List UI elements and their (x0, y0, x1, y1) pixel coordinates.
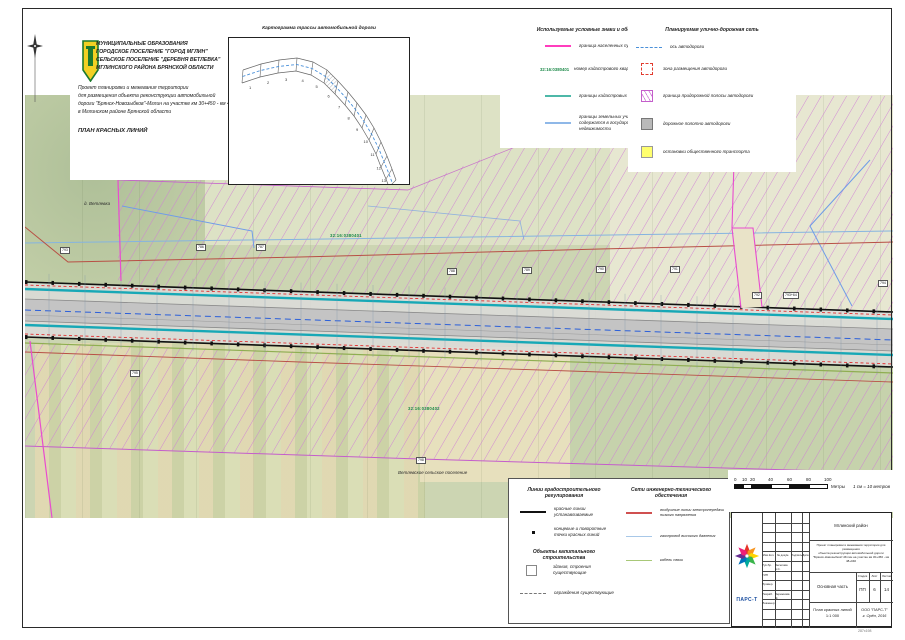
legend-reg-title: Линии градостроительного регулирования (514, 487, 614, 499)
sig-header: Изм.Кол. (762, 553, 775, 557)
sig-role: Провер. (762, 582, 775, 586)
svg-text:10: 10 (364, 139, 369, 144)
svg-text:3: 3 (285, 77, 288, 82)
building-swatch (526, 565, 537, 576)
legend-item: красные линии устанавливаемые (520, 506, 616, 518)
project-desc: Проект планировки и межевания территории… (811, 544, 891, 563)
svg-text:13: 13 (382, 178, 387, 183)
stage-label: Стадия (856, 574, 869, 578)
legend-item: газопровод высокого давления (626, 534, 726, 539)
sig-header: № докум. (775, 553, 791, 557)
legend-item: дорожное полотно автодороги (641, 118, 787, 130)
scalebar-note: 1 см = 10 метров (853, 484, 890, 489)
legend-item: концевые и поворотные точки красных лини… (520, 526, 616, 538)
pars-t-logo-text: ПАРС-Т (732, 597, 762, 603)
power-line-swatch (626, 512, 652, 514)
svg-text:7: 7 (338, 105, 341, 110)
pars-t-logo-icon (734, 539, 760, 573)
sig-role: Разраб. (762, 592, 775, 596)
doc-title: План красных линий 1:1 000 (809, 607, 856, 619)
compass-north-icon (26, 34, 44, 106)
turn-point-swatch (532, 531, 535, 534)
cadastral-number-swatch: 32:16:0380401 (540, 67, 572, 72)
legend-item: остановки общественного транспорта (641, 146, 787, 158)
svg-text:9: 9 (356, 127, 359, 132)
sig-role: Инженер (762, 601, 775, 605)
municipal-title: МУНИЦИПАЛЬНЫЕ ОБРАЗОВАНИЯ ГОРОДСКОЕ ПОСЕ… (96, 40, 246, 72)
project-title: Проект планировки и межевания территории… (78, 84, 244, 116)
title-block: ПАРС-Т Изм.Кол. № докум. Подпись Дата Ру… (731, 512, 892, 627)
svg-text:1: 1 (249, 85, 252, 90)
inset-route-diagram: 1234567891011121314 (229, 38, 409, 184)
scalebar-bar: Метры1 см = 10 метров (734, 484, 892, 489)
legend-item: здания, строения существующие (520, 564, 616, 576)
company-cell: ООО "ПАРС-Т" г. Орёл, 2016 (856, 608, 893, 619)
sig-name: Вережнова М. (775, 592, 791, 600)
sheet-label: Лист (869, 574, 880, 578)
svg-text:8: 8 (348, 116, 351, 121)
sig-role: Рук.бр. (762, 563, 775, 567)
sig-name: Веселова Е.С. (775, 563, 791, 571)
road-surface-swatch (641, 118, 653, 130)
plan-title: ПЛАН КРАСНЫХ ЛИНИЙ (78, 128, 147, 134)
svg-text:5: 5 (316, 84, 319, 89)
part-cell: Основная часть (809, 584, 856, 589)
district-cell: Мглинский район (809, 523, 893, 528)
legend-eng-title: Сети инженерно-технического обеспечения (616, 487, 726, 499)
sheets-label: Листов (880, 574, 893, 578)
legend-item: воздушные линии электропередачи низкого … (626, 508, 726, 518)
magenta-line-swatch (545, 45, 571, 48)
axis-dashed-swatch (636, 47, 662, 48)
inset-title: Картограмма трассы автомобильной дороги (228, 26, 410, 31)
svg-text:11: 11 (371, 152, 376, 157)
sheet: д. Ветлевка Ветлевское сельское поселени… (0, 0, 905, 640)
sheet-value: 6 (869, 587, 880, 592)
svg-text:6: 6 (328, 94, 331, 99)
legend-item: ограждения существующие (520, 590, 616, 596)
teal-line-swatch (545, 95, 571, 98)
red-zone-swatch (641, 63, 653, 75)
legend-item: граница придорожной полосы автодороги (641, 90, 787, 102)
legend-capital-title: Объекты капитального строительства (514, 549, 614, 561)
inset-cartogram: 1234567891011121314 (228, 37, 410, 185)
gas-line-swatch (626, 536, 652, 538)
cable-line-swatch (626, 560, 652, 562)
sheets-value: 14 (880, 587, 893, 592)
sig-header: Дата (802, 553, 809, 557)
bus-stop-swatch (641, 146, 653, 158)
fence-dashed-swatch (520, 593, 546, 594)
svg-text:4: 4 (302, 78, 305, 83)
red-line-swatch (520, 511, 546, 514)
sig-header: Подпись (791, 553, 802, 557)
scalebar: 0 10 20 40 60 80 100 Метры1 см = 10 метр… (734, 477, 892, 489)
scalebar-units: Метры (831, 484, 845, 489)
legend-network-title: Планируемая улично-дорожная сеть (636, 27, 788, 33)
legend-item: зона размещения автодороги (641, 63, 787, 75)
lightblue-line-swatch (545, 122, 571, 124)
legend-item: кабель связи (626, 558, 726, 563)
sheet-size-note: 287x198 (858, 629, 871, 633)
legend-item: ось автодороги (636, 44, 786, 50)
stage-value: ПП (856, 587, 869, 592)
roadside-strip-swatch (641, 90, 653, 102)
svg-text:12: 12 (377, 166, 382, 171)
svg-text:2: 2 (267, 80, 270, 85)
sig-role: ГИП (762, 573, 775, 577)
